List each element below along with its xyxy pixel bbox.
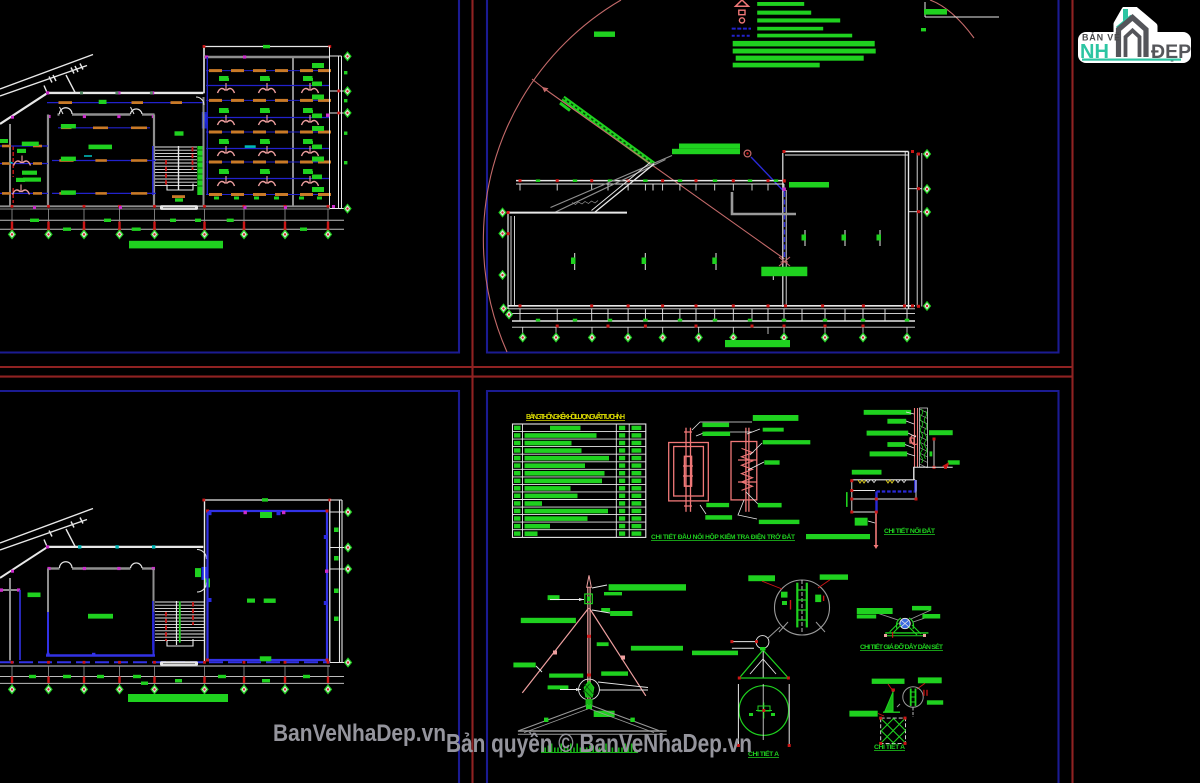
- svg-text:Bản quyền © BanVeNhaDep.vn: Bản quyền © BanVeNhaDep.vn: [446, 728, 752, 758]
- svg-text:BanVeNhaDep.vn: BanVeNhaDep.vn: [273, 720, 446, 747]
